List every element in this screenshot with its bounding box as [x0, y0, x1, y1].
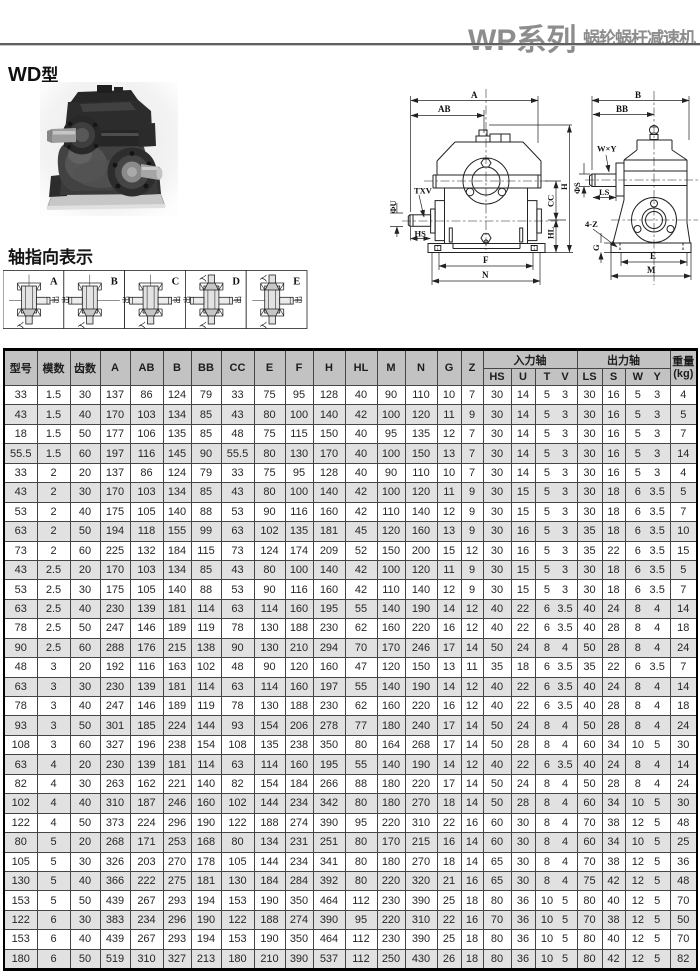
- svg-text:M: M: [647, 265, 656, 275]
- svg-text:LS: LS: [599, 187, 610, 197]
- svg-text:入: 入: [198, 274, 207, 282]
- svg-text:ΦU: ΦU: [388, 200, 398, 213]
- svg-text:入: 入: [198, 321, 207, 329]
- svg-text:D: D: [232, 277, 240, 288]
- svg-text:TXV: TXV: [414, 186, 433, 196]
- svg-text:N: N: [482, 270, 489, 280]
- svg-text:出: 出: [50, 296, 60, 304]
- svg-text:CC: CC: [546, 195, 556, 207]
- svg-text:4-Z: 4-Z: [585, 219, 598, 229]
- svg-text:出: 出: [293, 296, 303, 304]
- svg-text:入: 入: [16, 321, 25, 329]
- svg-text:W×Y: W×Y: [597, 144, 616, 154]
- svg-text:F: F: [483, 255, 489, 265]
- svg-text:出: 出: [181, 296, 191, 304]
- svg-text:HL: HL: [546, 226, 556, 239]
- svg-text:入: 入: [259, 274, 268, 282]
- svg-text:E: E: [293, 277, 300, 288]
- svg-text:G: G: [591, 244, 601, 251]
- svg-text:A: A: [50, 277, 58, 288]
- svg-text:E: E: [650, 251, 656, 261]
- svg-text:A: A: [471, 90, 478, 100]
- svg-text:B: B: [111, 277, 118, 288]
- svg-text:出: 出: [172, 296, 182, 304]
- svg-text:出: 出: [60, 296, 70, 304]
- svg-text:出: 出: [232, 296, 242, 304]
- svg-text:入: 入: [138, 321, 147, 329]
- svg-text:出: 出: [121, 296, 131, 304]
- svg-text:HS: HS: [415, 229, 427, 239]
- svg-text:C: C: [172, 277, 180, 288]
- svg-text:ΦS: ΦS: [572, 182, 582, 194]
- svg-text:入: 入: [259, 321, 268, 329]
- svg-text:B: B: [635, 90, 641, 100]
- svg-text:入: 入: [77, 321, 86, 329]
- svg-text:H: H: [559, 183, 569, 190]
- svg-text:AB: AB: [438, 104, 451, 114]
- svg-text:BB: BB: [616, 104, 628, 114]
